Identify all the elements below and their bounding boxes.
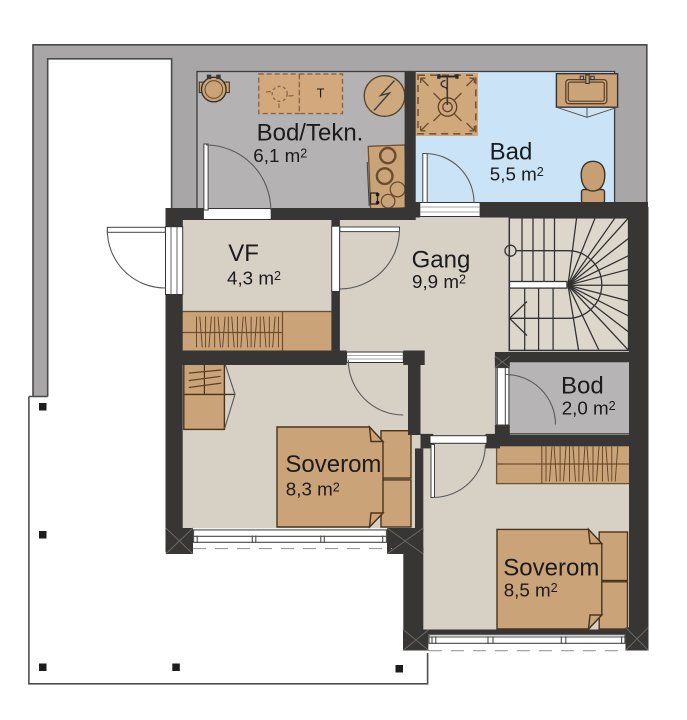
svg-text:T: T bbox=[317, 87, 325, 101]
svg-text:Bod: Bod bbox=[561, 372, 604, 399]
svg-text:8,3 m2: 8,3 m2 bbox=[286, 479, 340, 500]
svg-text:2,0 m2: 2,0 m2 bbox=[562, 397, 616, 418]
svg-text:5,5 m2: 5,5 m2 bbox=[490, 163, 544, 184]
svg-text:VF: VF bbox=[228, 240, 259, 267]
svg-text:6,1 m2: 6,1 m2 bbox=[253, 145, 307, 166]
svg-text:8,5 m2: 8,5 m2 bbox=[504, 579, 558, 600]
svg-text:Gang: Gang bbox=[412, 247, 471, 274]
svg-text:9,9 m2: 9,9 m2 bbox=[412, 271, 466, 292]
svg-text:Soverom: Soverom bbox=[503, 554, 599, 581]
svg-text:Bad: Bad bbox=[490, 139, 533, 166]
svg-text:Bod/Tekn.: Bod/Tekn. bbox=[257, 120, 364, 147]
svg-text:4,3 m2: 4,3 m2 bbox=[227, 267, 281, 288]
svg-text:Soverom: Soverom bbox=[285, 451, 381, 478]
